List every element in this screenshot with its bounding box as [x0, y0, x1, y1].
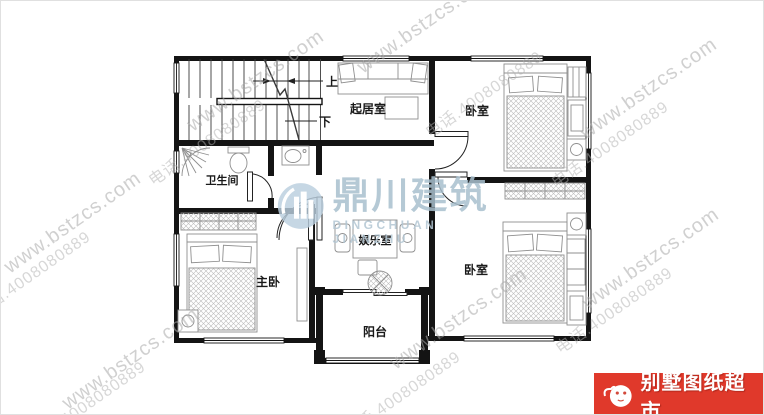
label-bathroom: 卫生间	[206, 173, 239, 187]
label-bedroom-bottom: 卧室	[464, 262, 488, 277]
door-bedroom-top	[435, 132, 468, 170]
plant-master	[178, 310, 198, 332]
master-shelf	[297, 248, 307, 321]
label-balcony: 阳台	[363, 324, 387, 339]
door-hall	[279, 197, 322, 240]
bed-bottom	[503, 222, 567, 323]
window-left-master	[174, 234, 179, 286]
shower	[182, 148, 210, 176]
bedside-units-top	[567, 67, 586, 160]
label-stairs-down: 下	[319, 115, 331, 129]
window-bottom-master	[204, 338, 284, 343]
site-badge: 别墅图纸超市	[594, 373, 764, 415]
living-table	[385, 97, 418, 119]
bathroom-fixtures	[182, 146, 309, 176]
toilet	[228, 147, 249, 173]
wardrobe-master	[181, 213, 256, 230]
game-table-set	[335, 220, 415, 295]
staircase	[189, 59, 323, 140]
label-stairs-up: 上	[326, 74, 338, 89]
floor-plan-page: 起居室 卧室 卫生间 主卧 娱乐室 卧室 阳台 上 下 www.bstzcs.c…	[0, 0, 764, 415]
window-top-bedroom	[471, 56, 543, 61]
door-bathroom	[248, 172, 273, 201]
badge-text: 别墅图纸超市	[641, 366, 764, 415]
window-balcony	[326, 358, 419, 363]
door-master	[277, 202, 314, 240]
bedside-units-bottom	[567, 213, 586, 325]
label-master-bedroom: 主卧	[256, 274, 280, 289]
stair-railing	[217, 99, 322, 105]
window-left-bathroom	[174, 151, 179, 173]
window-left-stairs	[174, 63, 179, 93]
window-right-bedroom-bottom	[586, 229, 591, 313]
washbasin	[282, 146, 309, 165]
label-entertainment: 娱乐室	[359, 233, 392, 247]
sofa	[338, 63, 428, 94]
label-bedroom-top: 卧室	[465, 103, 489, 118]
floor-plan-drawing: 起居室 卧室 卫生间 主卧 娱乐室 卧室 阳台 上 下	[1, 1, 764, 415]
window-right-bedroom-top	[586, 73, 591, 149]
window-bottom-bedroom	[464, 336, 554, 341]
bed-top	[504, 64, 567, 171]
label-living-room: 起居室	[349, 101, 386, 116]
mascot-icon	[602, 380, 634, 410]
window-top-living	[343, 56, 409, 61]
door-bedroom-bottom	[435, 172, 467, 206]
